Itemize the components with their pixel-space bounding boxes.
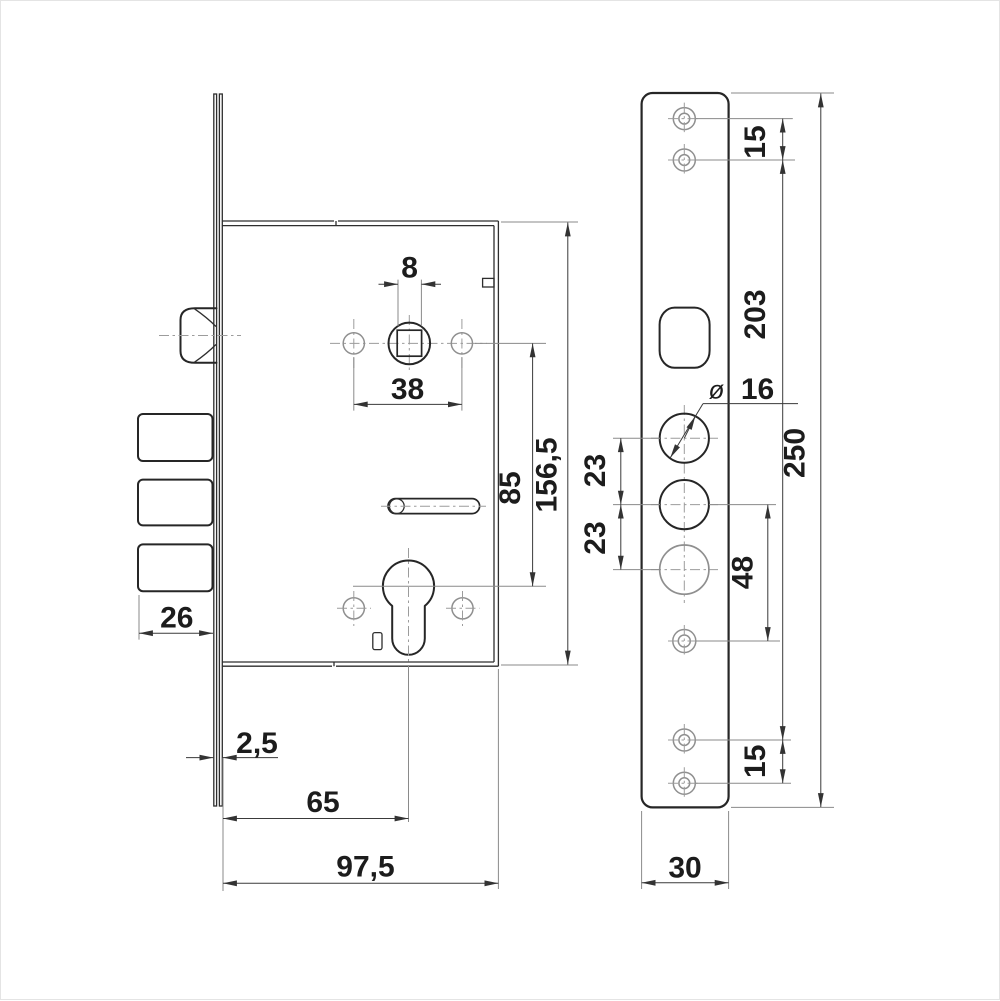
side-view: 8 38 85 156,5 26 2,5 65: [138, 94, 578, 891]
dim-label-bolt-throw: 26: [160, 602, 193, 635]
dim-label-hub-to-cylinder: 85: [494, 471, 527, 504]
dim-label-handle-fixing-spacing: 38: [391, 373, 424, 406]
case-seam-ticks: [334, 221, 336, 666]
faceplate-front-outline: [642, 93, 729, 807]
dia16-inner-arrow: [684, 416, 695, 438]
deadbolts: [138, 414, 213, 591]
dim85-ext: [353, 343, 546, 586]
bolt-hole-ext-lines: [613, 438, 776, 569]
dimensions-side: 8 38 85 156,5 26 2,5 65: [139, 222, 578, 891]
cylinder-hole: [337, 548, 480, 673]
lock-technical-drawing: 8 38 85 156,5 26 2,5 65: [0, 0, 1000, 1000]
dim-label-bolt-to-screw: 48: [727, 556, 760, 589]
front-view: 15 203 15 23 23 48 250 ø 16: [579, 93, 834, 889]
dim-label-bolt-pitch-upper: 23: [579, 454, 612, 487]
dim-label-case-depth: 97,5: [336, 851, 394, 884]
screw-hole-middle: [668, 625, 701, 657]
case-side-tab: [483, 278, 494, 287]
dim-label-faceplate-thickness: 2,5: [236, 727, 278, 760]
dim-label-faceplate-width: 30: [668, 851, 701, 884]
key-slot: [381, 499, 486, 514]
latch-bolt: [159, 308, 241, 363]
faceplate-side: [214, 94, 222, 806]
hub-cutout: [660, 308, 710, 368]
dim-label-case-height: 156,5: [531, 437, 564, 512]
deadbolt-1: [138, 414, 213, 461]
deadbolt-2: [138, 480, 213, 526]
drawing-svg: 8 38 85 156,5 26 2,5 65: [1, 1, 1000, 1001]
faceplate-side-outer: [214, 94, 217, 806]
dim-label-bolt-hole-diameter: 16: [741, 373, 774, 406]
deadbolt-3: [138, 544, 213, 591]
faceplate-side-inner: [219, 94, 222, 806]
dimensions-front: 15 203 15 23 23 48 250 ø 16: [579, 93, 834, 889]
dim-label-bolt-pitch-lower: 23: [579, 521, 612, 554]
dim-label-screw-pitch-top: 15: [739, 125, 772, 158]
dim-label-spindle-square: 8: [401, 252, 418, 285]
case-inner-edge: [222, 226, 494, 662]
diameter-symbol: ø: [709, 375, 725, 405]
small-slot: [373, 633, 382, 650]
dim-label-faceplate-length: 250: [779, 428, 812, 478]
dia16-leader: [670, 404, 703, 458]
dim-label-screw-pitch-bottom: 15: [739, 745, 772, 778]
dim-label-screw-span: 203: [739, 289, 772, 339]
dim-label-backset: 65: [306, 786, 339, 819]
